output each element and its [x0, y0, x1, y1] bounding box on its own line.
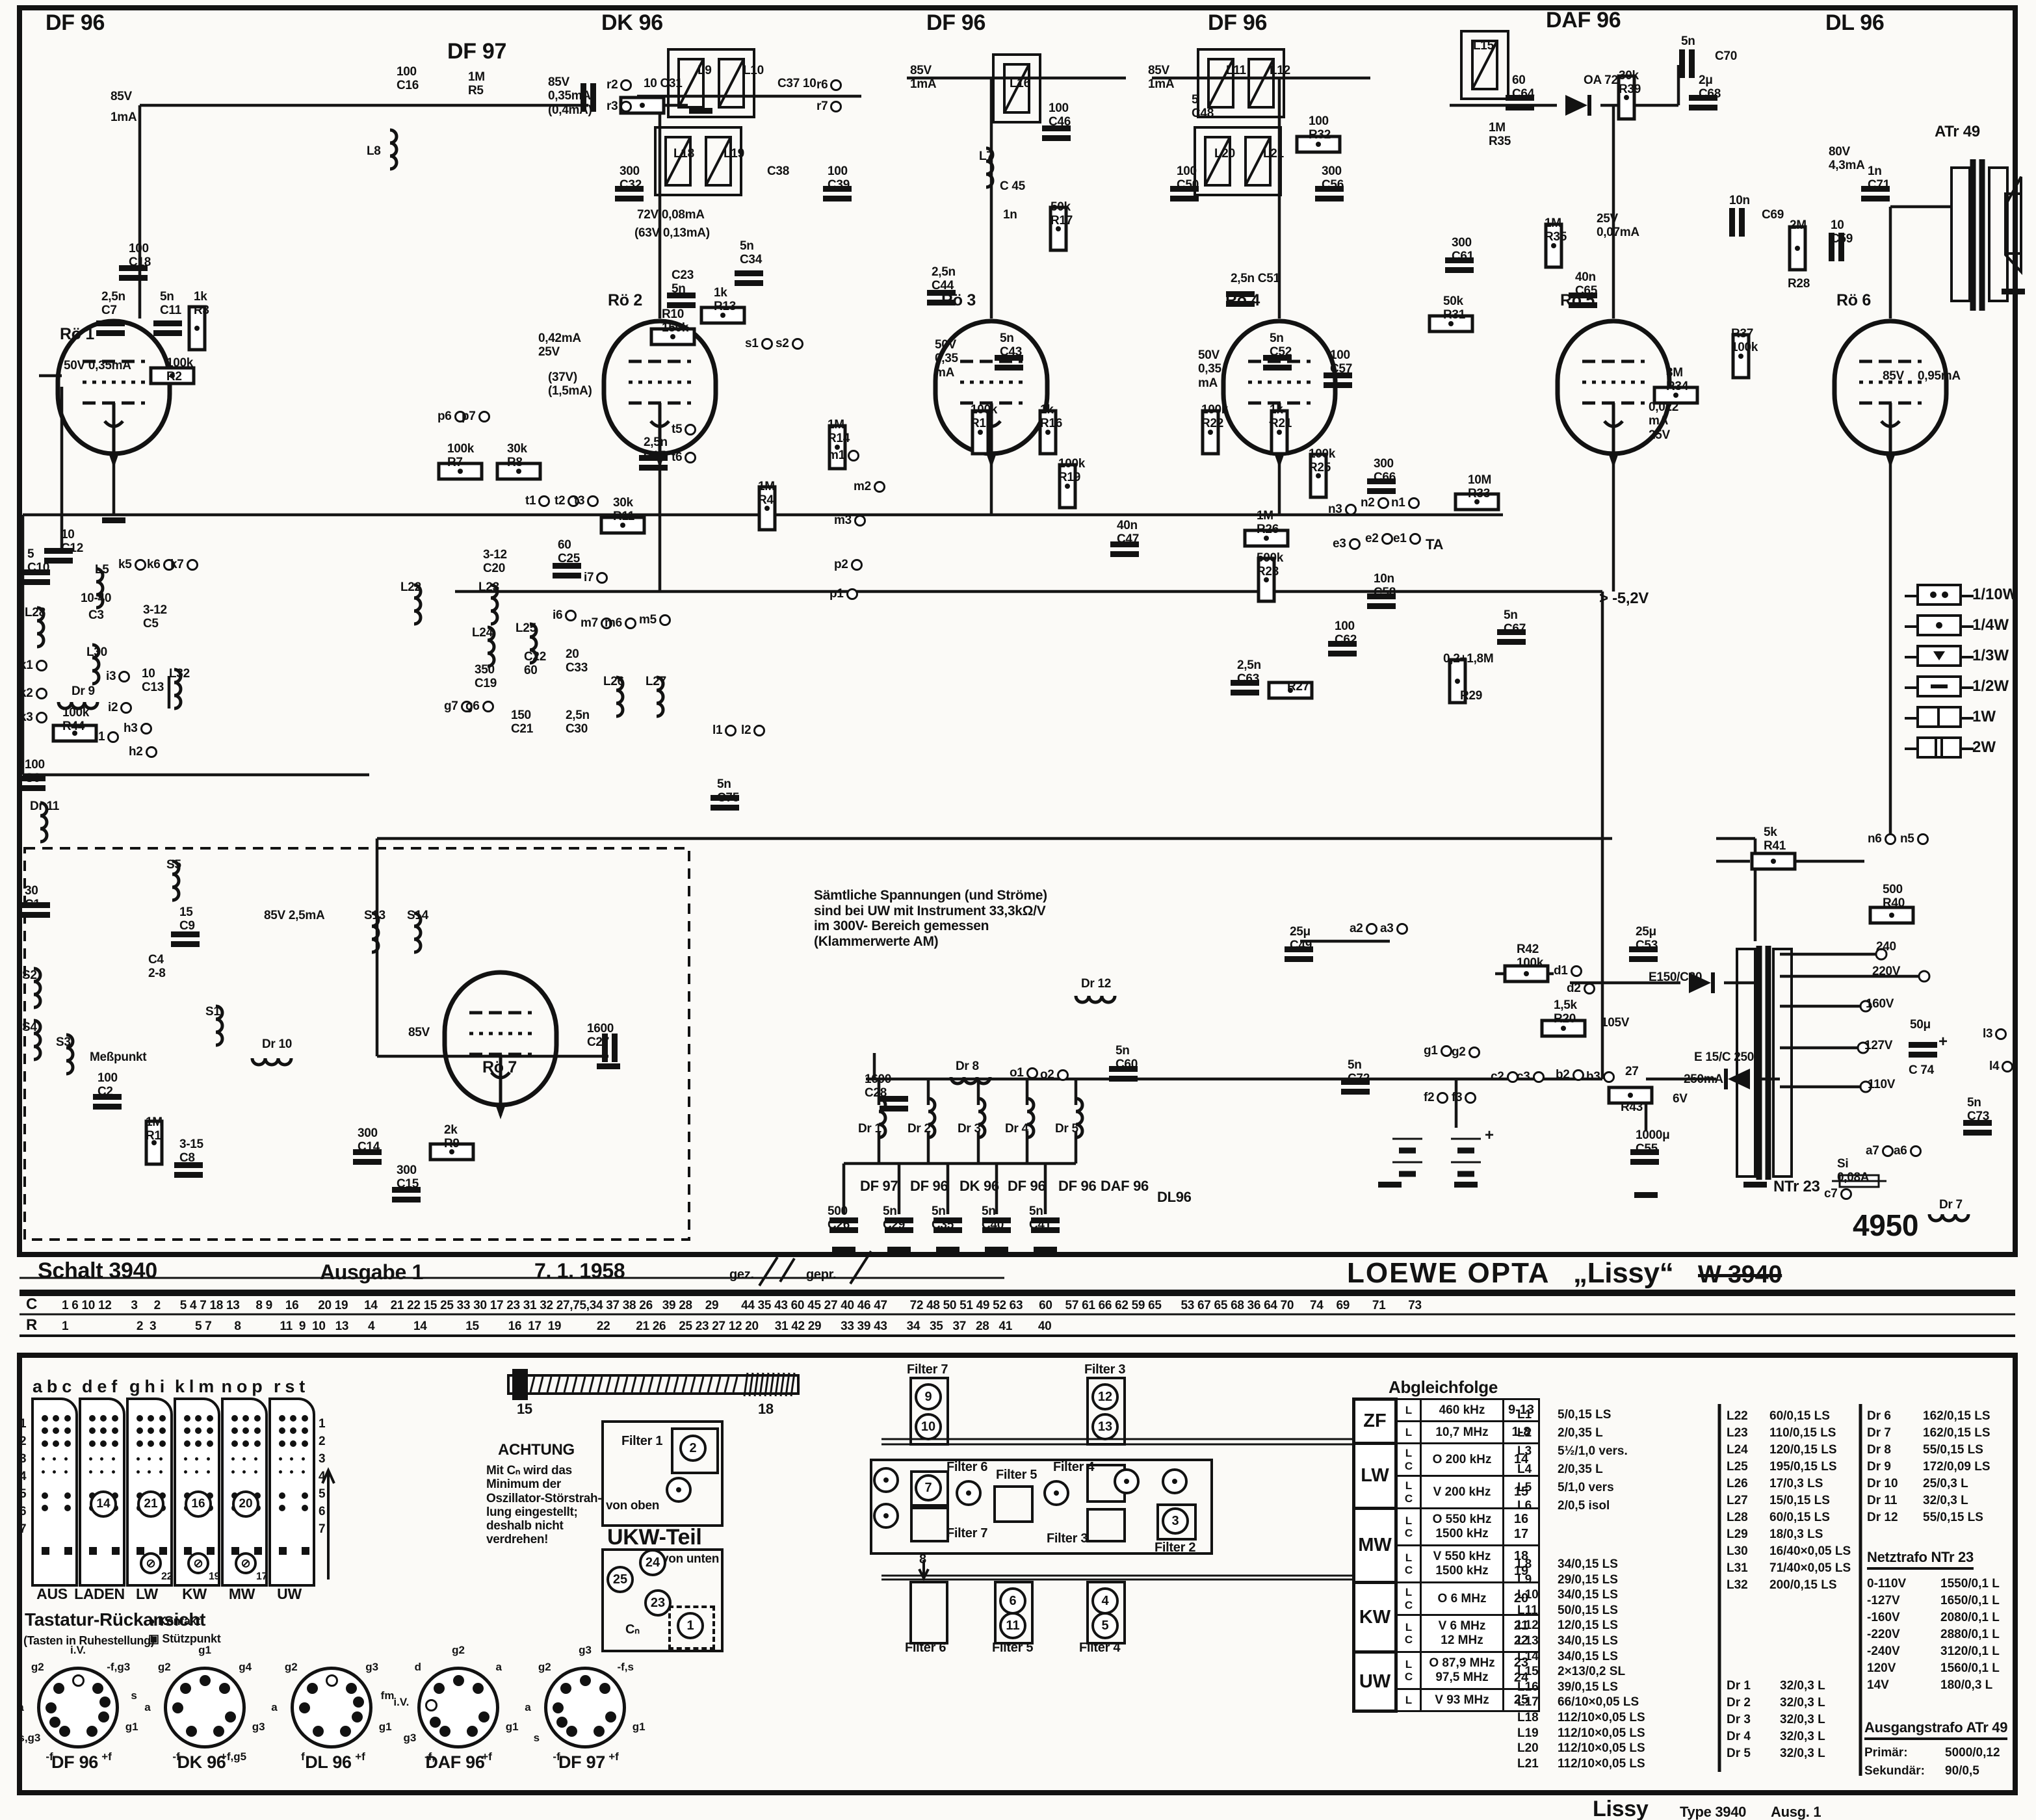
contact-dot — [279, 1505, 285, 1511]
key-letters: g h i — [126, 1377, 168, 1396]
contact-dot — [64, 1470, 68, 1474]
fr-cell: O 200 kHz — [1421, 1444, 1504, 1476]
schematic-label: 3M R34 — [1666, 366, 1688, 394]
socket-pin-label: s — [534, 1732, 540, 1745]
tube-symbol — [1558, 321, 1669, 468]
schematic-label: L30 — [86, 645, 107, 659]
part-name: L15 — [1517, 1665, 1539, 1679]
abgleich-row: ZFL460 kHz9-13 — [1354, 1399, 1539, 1422]
schematic-label: Filter 2 — [1155, 1540, 1195, 1555]
lc-cell: L — [1396, 1399, 1421, 1422]
support-square — [207, 1547, 215, 1555]
schematic-label: Dr 10 — [262, 1037, 292, 1051]
keyboard-row-number: 7 — [20, 1522, 27, 1537]
schematic-label: L23 — [478, 580, 499, 594]
socket-pin — [560, 1683, 571, 1694]
circled-number-13: 13 — [1091, 1413, 1119, 1440]
dot — [1930, 591, 1937, 598]
terminal-icon — [620, 79, 632, 91]
schematic-label: 2,5n C30 — [566, 708, 590, 736]
terminal-icon — [1408, 497, 1420, 509]
schematic-label: Dr 4 — [1005, 1122, 1028, 1136]
schematic-label: k1 — [20, 658, 47, 672]
lc-cell: L C — [1396, 1444, 1421, 1476]
keyboard-legend-kontakt: ● Kontakt — [148, 1615, 200, 1628]
contact-dot — [242, 1427, 249, 1434]
part-name: L22 — [1727, 1409, 1748, 1423]
terminal-icon — [1377, 497, 1389, 509]
part-value: 55/0,15 LS — [1923, 1443, 1983, 1457]
part-value: 90/0,5 — [1945, 1764, 1979, 1778]
keyboard-key-mw: 20⊘17 — [221, 1397, 268, 1587]
part-value: 34/0,15 LS — [1558, 1557, 1618, 1572]
schematic-label: 50k R17 — [1051, 200, 1073, 228]
keyboard-trimmer: ⊘ — [140, 1552, 162, 1574]
legend-label: 1/2W — [1972, 677, 2009, 695]
contact-dot — [290, 1427, 296, 1434]
schematic-label: h2 — [129, 745, 157, 759]
socket-pin-hollow — [326, 1674, 338, 1687]
resistor-wattage-icon-dots2 — [1916, 584, 1962, 606]
schematic-label: Filter 7 — [907, 1362, 948, 1377]
socket-pin-label: f — [301, 1750, 305, 1763]
socket-pin-label: i.V. — [70, 1644, 86, 1657]
contact-dot — [231, 1427, 238, 1434]
socket-pin-label: g3 — [579, 1644, 592, 1657]
schematic-label: r7 — [816, 99, 842, 113]
socket-pin-label: +f,g5 — [220, 1750, 246, 1763]
schematic-label: 10n C58 — [1374, 572, 1396, 600]
schematic-label: 20 C33 — [566, 647, 588, 675]
socket-pin — [430, 1717, 441, 1728]
terminal-icon — [2002, 1061, 2013, 1072]
part-name: L16 — [1517, 1680, 1539, 1695]
part-name: L30 — [1727, 1544, 1748, 1559]
part-name: L21 — [1517, 1757, 1539, 1771]
terminal-icon — [565, 610, 577, 621]
keyboard-circled-21: 21 — [137, 1490, 164, 1518]
part-value: 110/0,15 LS — [1769, 1426, 1836, 1440]
schematic-label: Dr 11 — [30, 799, 59, 813]
circled-number-1: 1 — [677, 1612, 704, 1639]
schematic-label: 5n C72 — [1348, 1058, 1370, 1086]
socket-pin — [213, 1726, 224, 1737]
schematic-label: 5k R41 — [1764, 825, 1786, 853]
part-value: 2080/0,1 L — [1940, 1611, 2000, 1625]
terminal-icon — [1840, 1188, 1852, 1200]
terminal-icon — [538, 495, 550, 507]
lc-cell: L C — [1396, 1509, 1421, 1546]
schematic-label: d2 — [1567, 981, 1595, 995]
socket-pin-label: g2 — [31, 1661, 44, 1674]
socket-pin-hollow — [72, 1674, 85, 1687]
schematic-label: Mit Cₙ wird das Minimum der Oszillator-S… — [486, 1464, 601, 1547]
schematic-label: R42 100k — [1517, 942, 1543, 970]
legend-label: 1/10W — [1972, 586, 2017, 604]
schematic-label: 30k R11 — [613, 496, 634, 524]
schematic-label: b2 — [1556, 1068, 1584, 1082]
schematic-label: 127V — [1864, 1039, 1892, 1052]
terminal-icon — [761, 338, 773, 350]
part-name: Dr 7 — [1867, 1426, 1891, 1440]
terminal-icon — [830, 101, 842, 112]
schematic-label: + — [1938, 1033, 1948, 1051]
schematic-label: 3-12 C20 — [483, 548, 507, 576]
schematic-label: R10 150k — [662, 307, 688, 335]
fr-cell: V 93 MHz — [1421, 1689, 1504, 1711]
schematic-label: (63V 0,13mA) — [634, 226, 710, 240]
schematic-label: C23 5n — [672, 268, 694, 296]
schematic-label: 85V 2,5mA — [264, 909, 324, 922]
schematic-label: 100k R15 — [971, 403, 997, 431]
contact-dot — [42, 1457, 45, 1461]
schematic-label: r2 — [607, 78, 632, 92]
terminal-icon — [146, 746, 157, 758]
alignment-hole — [1162, 1468, 1188, 1494]
support-square — [231, 1547, 239, 1555]
legend-item: 1/2W — [1916, 675, 2009, 697]
fr-cell: 10,7 MHz — [1421, 1422, 1504, 1444]
terminal-icon — [135, 559, 146, 571]
schematic-label: t6 — [672, 450, 696, 464]
abgleich-row: KWL CO 6 MHz20 — [1354, 1583, 1539, 1615]
terminal-icon — [587, 495, 599, 507]
schematic-label: L26 — [603, 675, 624, 688]
fr-cell: O 87,9 MHz 97,5 MHz — [1421, 1652, 1504, 1689]
cap-symbol — [1909, 1042, 1937, 1058]
ifcan-symbol — [655, 127, 741, 195]
contact-dot — [100, 1427, 107, 1434]
coilv-symbol — [1076, 996, 1115, 1002]
schematic-label: f2 — [1424, 1091, 1448, 1104]
keyboard-row-number: 1 — [319, 1417, 326, 1431]
c-row-label: C — [26, 1296, 37, 1314]
terminal-icon — [1345, 504, 1357, 515]
contact-dot — [242, 1415, 249, 1422]
schematic-label: Dr 9 — [72, 684, 95, 698]
socket-pin-label: a — [525, 1701, 530, 1714]
keyboard-key-label: MW — [216, 1586, 268, 1603]
schematic-label: L19 — [724, 147, 744, 161]
terminal-icon — [482, 701, 494, 712]
schematic-label: k3 — [20, 710, 47, 724]
tube-symbol — [445, 972, 556, 1119]
schematic-label: e3 — [1333, 537, 1361, 551]
schematic-label: 350 C19 — [475, 663, 497, 691]
schematic-label: 1k R16 — [1040, 403, 1062, 431]
terminal-icon — [478, 411, 490, 422]
schematic-label: L5 — [95, 563, 109, 577]
part-value: 2×13/0,2 SL — [1558, 1665, 1625, 1679]
schematic-label: C22 60 — [524, 650, 546, 678]
keyboard-key-label: KW — [168, 1586, 220, 1603]
schematic-label: 85V — [111, 90, 132, 103]
part-name: L28 — [1727, 1511, 1748, 1525]
circled-number-24: 24 — [639, 1549, 666, 1576]
part-value: 120/0,15 LS — [1769, 1443, 1837, 1457]
keyboard-row-number: 2 — [20, 1435, 27, 1449]
contact-dot — [42, 1427, 48, 1434]
resistor-wattage-icon-split2 — [1916, 706, 1962, 728]
schematic-label: 5n C60 — [1116, 1044, 1138, 1072]
part-value: 200/0,15 LS — [1769, 1578, 1837, 1592]
schematic-label: Meßpunkt — [90, 1050, 146, 1064]
schematic-label: h3 — [124, 721, 152, 735]
schematic-label: 5n C29 — [883, 1204, 905, 1232]
keyboard-row-number: 6 — [319, 1505, 326, 1519]
contact-dot — [302, 1470, 305, 1474]
support-square — [184, 1547, 192, 1555]
keyboard-key-aus — [31, 1397, 78, 1587]
contact-dot — [112, 1440, 118, 1447]
schematic-label: 25V 0,07mA — [1597, 212, 1639, 240]
socket-pin — [340, 1726, 351, 1737]
schematic-label: i1 — [95, 730, 119, 744]
terminal-icon — [1603, 1071, 1615, 1083]
socket-pin-label: g1 — [633, 1721, 646, 1734]
schematic-label: i3 — [106, 669, 130, 683]
terminal-icon — [1571, 965, 1582, 977]
socket-pin-label: -f,g3 — [107, 1661, 130, 1674]
contact-dot — [231, 1457, 235, 1461]
keyboard-row-number: 4 — [20, 1470, 27, 1484]
legend-item: 1/10W — [1916, 584, 2017, 606]
schematic-label: p2 — [834, 558, 863, 571]
terminal-icon — [1885, 833, 1896, 845]
part-value: 2/0,35 L — [1558, 1426, 1603, 1440]
schematic-label: b3 — [1586, 1070, 1615, 1084]
band-cell: UW — [1354, 1652, 1396, 1711]
cap-symbol — [171, 931, 200, 947]
contact-dot — [159, 1457, 163, 1461]
schematic-label: l2 — [741, 723, 765, 737]
schematic-label: n6 — [1868, 832, 1896, 846]
triangle — [1933, 651, 1945, 660]
part-value: 55/0,15 LS — [1923, 1511, 1983, 1525]
support-square — [302, 1547, 309, 1555]
schematic-label: Rö 2 — [608, 291, 642, 309]
contact-dot — [89, 1470, 92, 1474]
schematic-label: 50V 0,35 mA — [935, 338, 958, 380]
gnd-symbol — [689, 108, 712, 114]
contact-dot — [279, 1415, 285, 1422]
key-letters: n o p — [221, 1377, 263, 1396]
socket-pin — [353, 1696, 364, 1708]
schematic-label: 1000μ C55 — [1636, 1128, 1669, 1156]
title-gepr: gepr. — [806, 1267, 836, 1282]
terminal-icon — [1465, 1092, 1476, 1104]
schematic-label: Si 0,08A — [1837, 1157, 1869, 1185]
schematic-label: m1 — [828, 448, 859, 462]
contact-dot — [100, 1440, 107, 1447]
divider — [1935, 739, 1937, 756]
contact-dot — [42, 1470, 45, 1474]
part-value: 5½/1,0 vers. — [1558, 1444, 1628, 1459]
socket-pin-label: a — [495, 1661, 501, 1674]
contact-dot — [302, 1457, 305, 1461]
part-name: Dr 12 — [1867, 1511, 1898, 1525]
terminal-icon — [1882, 1145, 1894, 1157]
schematic-label: 250mA — [1684, 1072, 1723, 1086]
contact-dot — [148, 1427, 154, 1434]
lc-cell: L C — [1396, 1652, 1421, 1689]
socket-pin-label: g3 — [252, 1721, 265, 1734]
contact-dot — [302, 1427, 308, 1434]
socket-pin — [346, 1683, 357, 1694]
socket-pin — [467, 1726, 478, 1737]
terminal-icon — [1381, 533, 1393, 545]
contact-dot — [279, 1427, 285, 1434]
socket-pin-label: -f — [553, 1750, 560, 1763]
part-value: 5000/0,12 — [1945, 1746, 2000, 1760]
schematic-label: k7 — [170, 558, 198, 571]
schematic-label: 50V 0,35mA — [64, 359, 131, 372]
socket-pin — [98, 1711, 109, 1722]
schematic-label: 100 C18 — [129, 242, 151, 270]
contact-dot — [64, 1457, 68, 1461]
schematic-label: E 15/C 250 — [1694, 1050, 1754, 1064]
schematic-label: o1 — [1010, 1066, 1038, 1080]
gnd-symbol — [936, 1247, 959, 1253]
contact-dot — [53, 1470, 56, 1474]
schematic-label: S3 — [56, 1035, 71, 1049]
contact-dot — [89, 1415, 96, 1422]
socket-pin-label: g4 — [239, 1661, 252, 1674]
circled-number-4: 4 — [1091, 1587, 1119, 1615]
sheet-number: 4950 — [1853, 1209, 1918, 1243]
schematic-label: 100 C2 — [98, 1071, 118, 1099]
schematic-label: (37V) (1,5mA) — [548, 370, 592, 398]
schematic-label: R29 — [1460, 689, 1482, 703]
title-schalt: Schalt 3940 — [38, 1258, 157, 1283]
terminal-icon — [1437, 1092, 1448, 1104]
schematic-label: 80V 4,3mA — [1829, 145, 1865, 173]
schematic-label: 1M R14 — [828, 418, 850, 446]
schematic-label: m6 — [605, 616, 636, 630]
schematic-label: a7 — [1866, 1144, 1894, 1158]
schematic-label: DF 96 — [46, 10, 105, 35]
key-letters: a b c — [31, 1377, 73, 1396]
schematic-label: 5n C34 — [740, 239, 762, 267]
contact-dot — [64, 1440, 71, 1447]
terminal-icon — [107, 731, 119, 743]
schematic-label: L12 — [1270, 64, 1290, 77]
panel-box — [909, 1581, 948, 1644]
schematic-label: S2 — [22, 968, 37, 982]
schematic-label: 300 C32 — [620, 164, 642, 192]
contact-dot — [42, 1440, 48, 1447]
support-square — [254, 1547, 262, 1555]
schematic-label: 1M R4 — [758, 480, 775, 508]
schematic-label: 6V — [1673, 1092, 1688, 1106]
support-square — [137, 1547, 144, 1555]
schematic-label: e2 — [1365, 532, 1393, 545]
abgleich-row: UWL CO 87,9 MHz 97,5 MHz23 24 — [1354, 1652, 1539, 1689]
schematic-label: DK 96 — [601, 10, 663, 35]
schematic-label: 5 C10 — [27, 547, 49, 575]
schematic-label: S13 — [364, 909, 385, 922]
schematic-label: ATr 49 — [1935, 123, 1980, 141]
keyboard-circled-16: 16 — [185, 1490, 212, 1518]
socket-pin-label: d — [415, 1661, 421, 1674]
schematic-label: C 74 — [1909, 1063, 1934, 1077]
contact-dot — [112, 1415, 118, 1422]
part-value: 16/40×0,05 LS — [1769, 1544, 1851, 1559]
lc-cell: L C — [1396, 1583, 1421, 1615]
schematic-label: Dr 7 — [1939, 1198, 1963, 1212]
contact-dot — [89, 1440, 96, 1447]
part-value: 112/10×0,05 LS — [1558, 1711, 1645, 1725]
socket-pin — [473, 1683, 484, 1694]
keyboard-row-number: 4 — [319, 1470, 326, 1484]
schematic-label: Filter 6 — [946, 1460, 987, 1474]
schematic-label: 1n C71 — [1868, 164, 1890, 192]
part-name: -127V — [1867, 1594, 1900, 1608]
circled-number-23: 23 — [644, 1589, 672, 1617]
resistor-wattage-icon-dash — [1916, 675, 1962, 697]
legend-label: 1/3W — [1972, 647, 2009, 665]
schematic-label: 2,5n C17 — [644, 435, 668, 463]
part-name: Sekundär: — [1864, 1764, 1925, 1778]
socket-pin-label: -f, — [424, 1750, 435, 1763]
schematic-label: i6 — [553, 608, 577, 622]
alignment-hole — [956, 1480, 982, 1506]
schematic-label: 1M R26 — [1257, 509, 1279, 537]
part-name: Dr 8 — [1867, 1443, 1891, 1457]
gnd-symbol — [597, 1063, 620, 1069]
socket-pin-label: s — [131, 1689, 137, 1702]
gnd-symbol — [985, 1247, 1008, 1253]
contact-dot — [207, 1457, 210, 1461]
dial-pointer-15: 15 — [517, 1401, 532, 1418]
schematic-label: g2 — [1452, 1045, 1480, 1059]
schematic-label: DF 96 — [1058, 1178, 1096, 1195]
schematic-label: a6 — [1894, 1144, 1922, 1158]
contact-dot — [64, 1505, 71, 1511]
socket-pin — [313, 1726, 324, 1737]
keyboard-key-label: LW — [121, 1586, 173, 1603]
schematic-label: 500 C26 — [828, 1204, 850, 1232]
schematic-label: a3 — [1380, 922, 1408, 935]
schematic-label: 40n C65 — [1575, 270, 1597, 298]
schematic-label: 300 C14 — [358, 1126, 380, 1154]
schematic-label: f3 — [1452, 1091, 1476, 1104]
alignment-hole — [873, 1467, 899, 1493]
schematic-label: 10-40 — [81, 591, 111, 605]
socket-pin — [566, 1726, 577, 1737]
contact-dot — [89, 1427, 96, 1434]
dot — [1942, 591, 1948, 598]
schematic-label: 105V — [1601, 1016, 1629, 1030]
socket-pin-label: +f — [101, 1750, 112, 1763]
contact-dot — [231, 1440, 238, 1447]
terminal-icon — [120, 702, 132, 714]
part-name: L1 — [1517, 1408, 1532, 1422]
circled-number-6: 6 — [999, 1587, 1026, 1615]
contact-dot — [279, 1492, 285, 1499]
contact-dot — [137, 1457, 140, 1461]
terminal-icon — [792, 338, 803, 350]
schematic-label: C 45 — [1000, 179, 1025, 193]
schematic-label: Dr 8 — [956, 1059, 979, 1073]
terminal-icon — [1584, 983, 1595, 994]
circled-number-12: 12 — [1091, 1383, 1119, 1410]
socket-pin — [556, 1717, 568, 1728]
schematic-label: 10 C59 — [1831, 218, 1853, 246]
schematic-label: DF 96 — [926, 10, 985, 35]
schematic-label: i2 — [108, 701, 132, 714]
socket-pin-label: +f — [482, 1750, 492, 1763]
